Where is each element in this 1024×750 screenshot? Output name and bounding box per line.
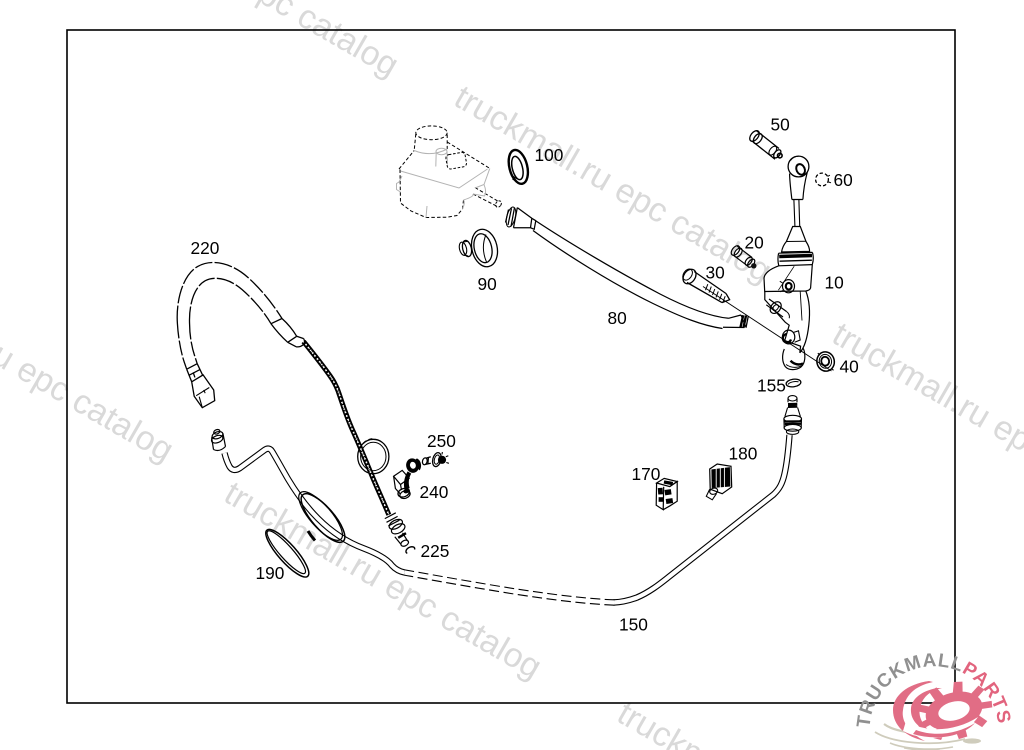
svg-text:20: 20 <box>745 233 764 253</box>
svg-text:240: 240 <box>420 482 449 502</box>
svg-text:truckmall.ru epc catalog: truckmall.ru epc catalog <box>826 315 1024 527</box>
svg-text:truckmall.ru epc catalog: truckmall.ru epc catalog <box>75 0 405 84</box>
svg-text:190: 190 <box>256 563 285 583</box>
svg-text:60: 60 <box>834 170 853 190</box>
svg-text:truckmall.ru epc catalog: truckmall.ru epc catalog <box>0 257 180 469</box>
svg-text:90: 90 <box>478 274 497 294</box>
svg-text:225: 225 <box>421 541 450 561</box>
svg-text:80: 80 <box>608 308 627 328</box>
svg-text:40: 40 <box>840 357 859 377</box>
svg-text:150: 150 <box>619 615 648 635</box>
svg-text:220: 220 <box>191 238 220 258</box>
svg-text:30: 30 <box>706 263 725 283</box>
svg-text:100: 100 <box>535 145 564 165</box>
svg-text:180: 180 <box>729 444 758 464</box>
svg-text:170: 170 <box>632 464 661 484</box>
svg-text:155: 155 <box>757 376 786 396</box>
svg-text:50: 50 <box>771 115 790 135</box>
svg-text:10: 10 <box>825 273 844 293</box>
svg-text:250: 250 <box>427 431 456 451</box>
svg-text:truckmall.ru epc catalog: truckmall.ru epc catalog <box>448 78 778 290</box>
